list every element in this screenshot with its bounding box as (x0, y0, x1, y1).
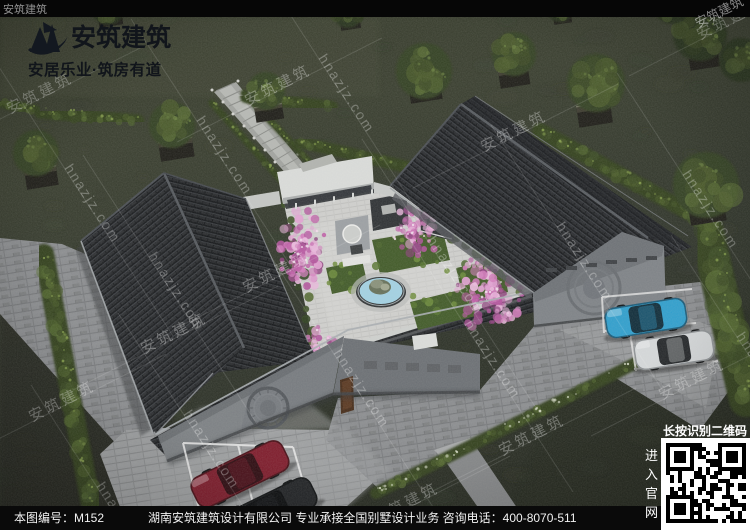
svg-text:入: 入 (645, 467, 658, 482)
svg-text:安居乐业·筑房有道: 安居乐业·筑房有道 (28, 60, 162, 79)
svg-text:官: 官 (645, 486, 658, 501)
svg-text:网: 网 (645, 505, 658, 520)
svg-text:湖南安筑建筑设计有限公司 专业承接全国别墅设计业务 咨询: 湖南安筑建筑设计有限公司 专业承接全国别墅设计业务 咨询电话：400-8070-… (148, 510, 577, 525)
svg-text:安筑建筑: 安筑建筑 (3, 2, 47, 16)
svg-text:长按识别二维码: 长按识别二维码 (663, 423, 747, 438)
svg-text:进: 进 (645, 448, 658, 463)
svg-text:安筑建筑: 安筑建筑 (71, 23, 171, 52)
svg-text:本图编号：M152: 本图编号：M152 (14, 510, 104, 525)
